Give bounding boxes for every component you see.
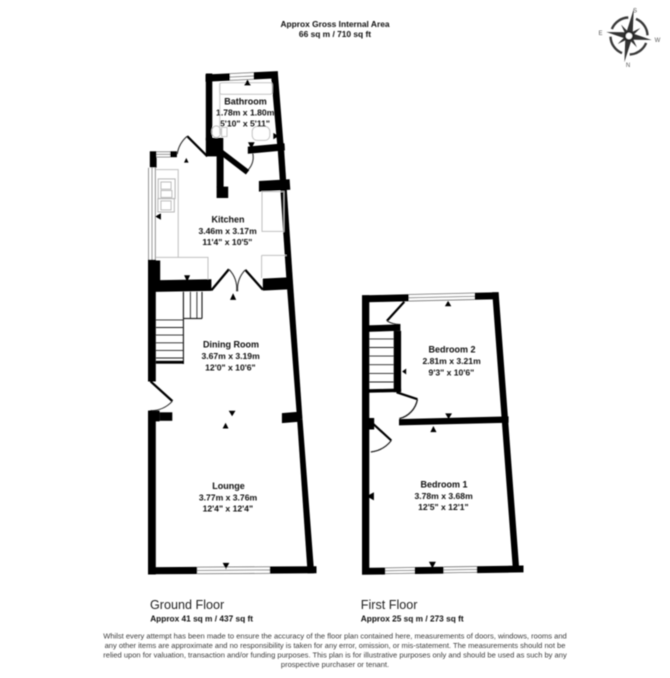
svg-text:3.46m x 3.17m: 3.46m x 3.17m bbox=[198, 226, 257, 236]
svg-text:S: S bbox=[633, 9, 637, 15]
svg-text:3.77m x 3.76m: 3.77m x 3.76m bbox=[199, 492, 258, 502]
svg-text:Bedroom 2: Bedroom 2 bbox=[428, 345, 475, 355]
svg-text:Bathroom: Bathroom bbox=[224, 97, 267, 107]
svg-text:9'3" x 10'6": 9'3" x 10'6" bbox=[429, 367, 475, 377]
svg-text:Kitchen: Kitchen bbox=[211, 215, 244, 225]
svg-text:12'0" x 10'6": 12'0" x 10'6" bbox=[205, 362, 255, 372]
svg-text:W: W bbox=[655, 38, 661, 44]
svg-text:prospective purchaser or tenan: prospective purchaser or tenant. bbox=[281, 660, 389, 669]
svg-text:Lounge: Lounge bbox=[212, 481, 245, 491]
svg-text:Bedroom 1: Bedroom 1 bbox=[420, 480, 467, 490]
svg-text:E: E bbox=[598, 31, 602, 37]
svg-text:relied upon for valuation, tra: relied upon for valuation, transaction a… bbox=[103, 651, 567, 660]
svg-text:First Floor: First Floor bbox=[361, 598, 418, 612]
svg-text:any other items are approximat: any other items are approximate and no r… bbox=[105, 641, 566, 650]
svg-text:5'10" x 5'11": 5'10" x 5'11" bbox=[220, 119, 270, 129]
svg-text:Whilst every attempt has been: Whilst every attempt has been made to en… bbox=[103, 632, 567, 641]
svg-text:3.67m x 3.19m: 3.67m x 3.19m bbox=[201, 351, 260, 361]
svg-text:2.81m x 3.21m: 2.81m x 3.21m bbox=[422, 356, 481, 366]
svg-text:3.78m x 3.68m: 3.78m x 3.68m bbox=[414, 491, 473, 501]
svg-text:12'4" x 12'4": 12'4" x 12'4" bbox=[203, 504, 253, 514]
svg-text:11'4" x 10'5": 11'4" x 10'5" bbox=[202, 237, 252, 247]
svg-text:Dining Room: Dining Room bbox=[203, 340, 259, 350]
svg-text:12'5" x 12'1": 12'5" x 12'1" bbox=[418, 502, 468, 512]
svg-text:N: N bbox=[626, 63, 630, 69]
svg-text:1.78m x 1.80m: 1.78m x 1.80m bbox=[216, 108, 275, 118]
svg-text:Ground Floor: Ground Floor bbox=[150, 598, 224, 612]
svg-text:Approx Gross Internal Area: Approx Gross Internal Area bbox=[280, 19, 389, 29]
svg-text:Approx 25 sq m / 273 sq ft: Approx 25 sq m / 273 sq ft bbox=[361, 613, 464, 623]
svg-text:Approx 41 sq m / 437 sq ft: Approx 41 sq m / 437 sq ft bbox=[150, 613, 253, 623]
svg-text:66 sq m / 710 sq ft: 66 sq m / 710 sq ft bbox=[299, 29, 371, 39]
